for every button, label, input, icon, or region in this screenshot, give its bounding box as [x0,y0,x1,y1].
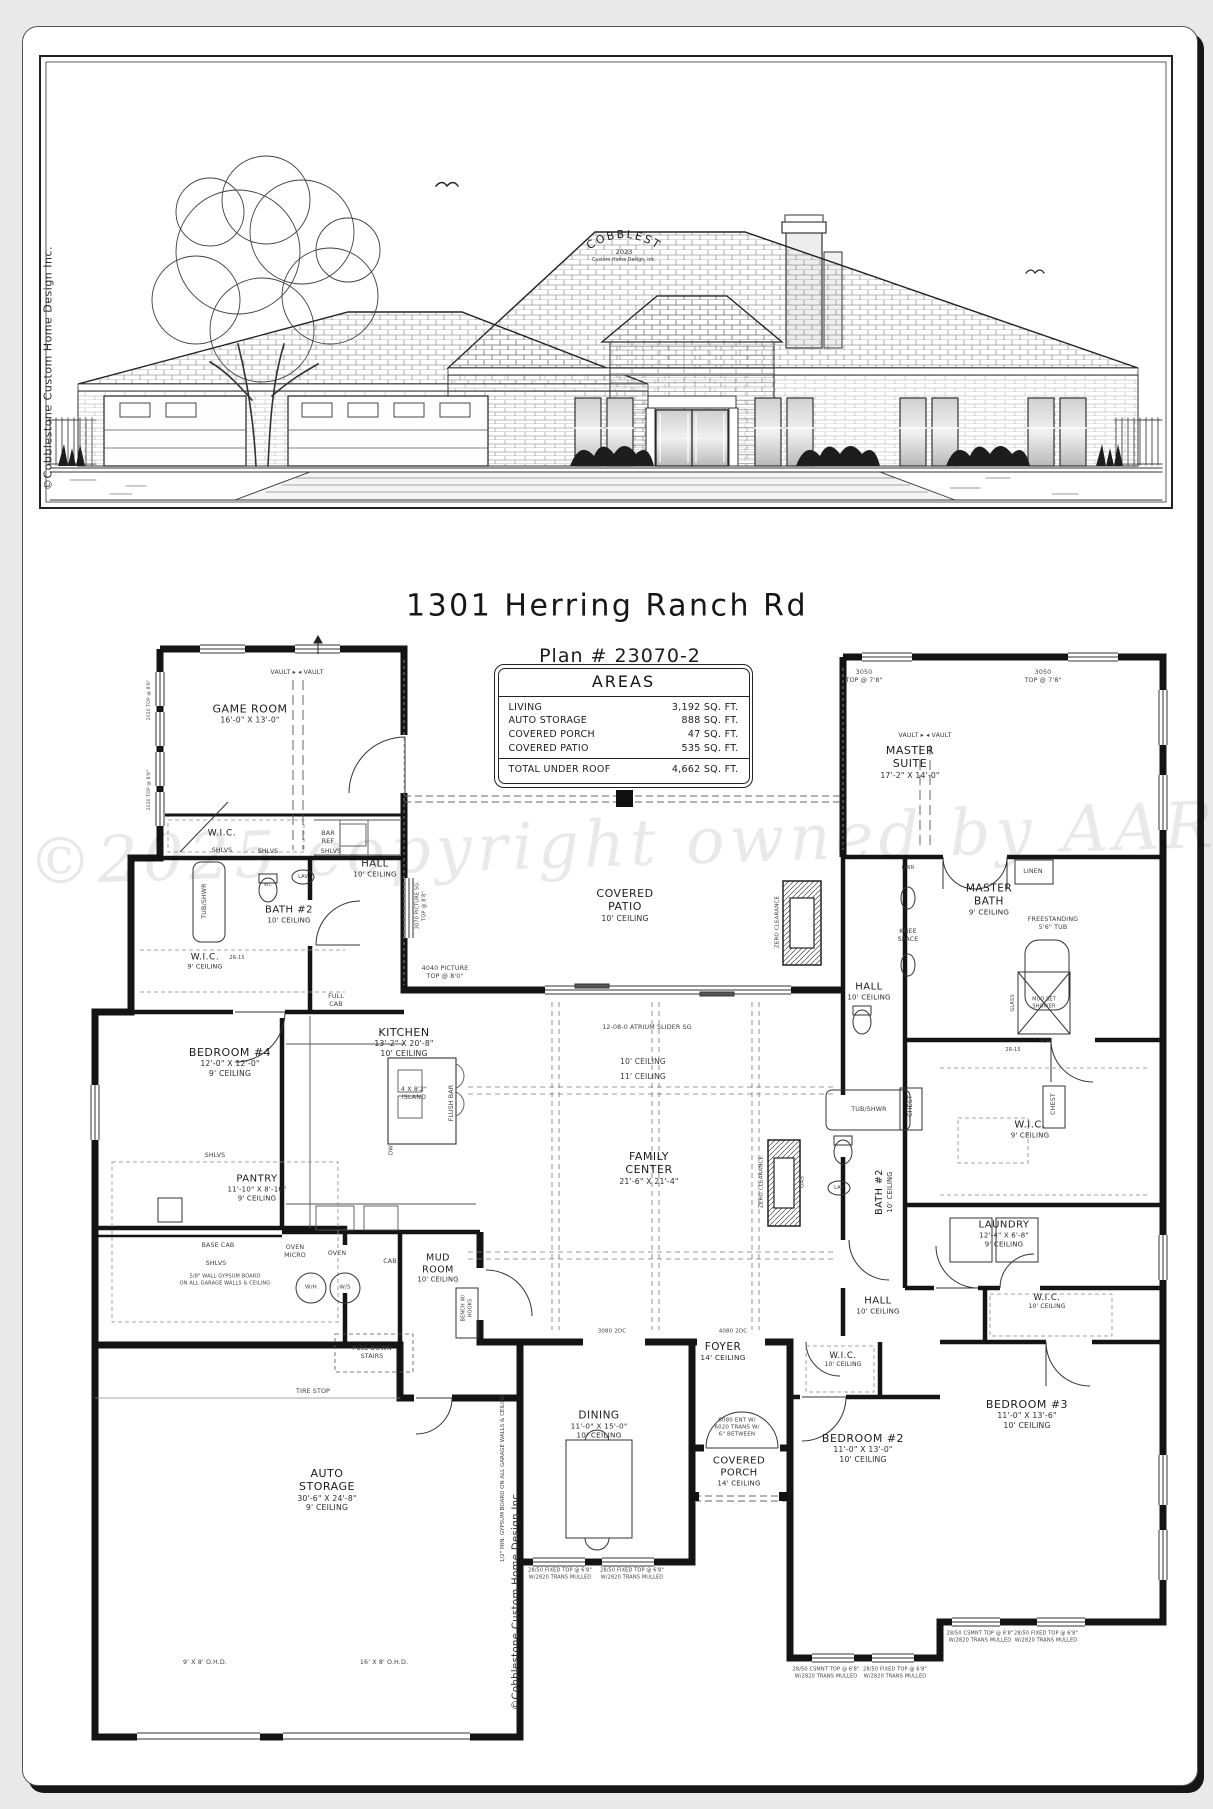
left-margin-credit: ©Cobblestone Custom Home Design Inc. [42,246,55,490]
room-label: KITCHEN 13'-2" X 20'-8"10' CEILING [374,1026,433,1058]
dining-table [566,1430,632,1550]
room-name: GAME ROOM [213,703,288,716]
plan-note: 28/50 FIXED TOP @ 6'8"W/2820 TRANS MULLE… [600,1568,664,1581]
plan-note: TUB/SHWR [201,883,209,918]
room-label: MASTERBATH 9' CEILING [966,883,1012,918]
logo-year: 2023 [616,248,633,256]
room-dimensions: 9' CEILING [966,908,1012,917]
room-label: BEDROOM #3 11'-0" X 13'-6"10' CEILING [986,1398,1068,1430]
sheet-address: 1301 Herring Ranch Rd [406,589,808,624]
room-name: MASTERSUITE [880,744,939,771]
room-name: W.I.C. [824,1351,861,1361]
room-label: BEDROOM #2 11'-0" X 13'-0"10' CEILING [822,1432,904,1464]
plan-note: PULL DOWNSTAIRS [352,1345,392,1361]
plan-note: 28/50 CSMNT TOP @ 6'8"W/2820 TRANS MULLE… [793,1667,860,1680]
plan-note: 4040 PICTURETOP @ 8'0" [422,965,469,981]
room-dimensions: 21'-6" X 21'-4" [619,1177,678,1186]
patio-post [616,790,633,807]
plan-note: 3050TOP @ 7'8" [1024,669,1061,685]
blueprint-sheet: COBBLESTONE 2023 Custom Home Design, Inc… [0,0,1213,1809]
garage-margin-credit: ©Cobblestone Custom Home Design Inc. [511,1490,522,1710]
plan-note: 9' X 8' O.H.D. [183,1659,227,1667]
area-row-label: COVERED PATIO [509,742,589,756]
room-name: AUTOSTORAGE [297,1467,356,1494]
plan-note: DW [388,1145,395,1155]
plan-note: LAV [298,874,308,881]
plan-note: 5/8" WALL GYPSUM BOARDON ALL GARAGE WALL… [180,1274,271,1287]
area-row: LIVING 3,192 SQ. FT. [509,701,739,715]
plan-note: 16' X 8' O.H.D. [360,1659,408,1667]
plan-note: FULLCAB [328,993,344,1009]
room-dimensions: 10' CEILING [847,994,890,1003]
room-name: MASTERBATH [966,883,1012,909]
room-label: MUDROOM 10' CEILING [417,1252,458,1283]
areas-total-label: TOTAL UNDER ROOF [509,763,611,777]
plan-note: 28/50 FIXED TOP @ 6'8"W/2820 TRANS MULLE… [863,1667,927,1680]
plan-note: 2R-15 [229,955,244,962]
room-name: PANTRY [228,1173,287,1185]
room-dimensions: 16'-0" X 13'-0" [213,716,288,725]
room-label: BATH #2 10' CEILING [265,905,313,926]
areas-title: AREAS [509,672,739,694]
room-dimensions: 11'-0" X 13'-6"10' CEILING [986,1411,1068,1430]
plan-note: W/S [339,1284,350,1291]
room-dimensions: 12'-4" X 6'-8"9' CEILING [978,1232,1029,1249]
room-dimensions: 14' CEILING [700,1354,745,1363]
room-dimensions: 9' CEILING [188,964,223,972]
plan-note: LINEN [1023,868,1043,876]
room-dimensions: 10' CEILING [886,1169,894,1215]
room-name: HALL [353,859,396,871]
plan-note: ZERO CLEARANCE [758,1156,765,1208]
room-label: HALL 10' CEILING [353,859,396,880]
plan-note: ZERO CLEARANCE [774,896,781,948]
plan-note: 11' CEILING [620,1072,666,1082]
room-label: GAME ROOM 16'-0" X 13'-0" [213,703,288,726]
room-label: AUTOSTORAGE 30'-6" X 24'-8"9' CEILING [297,1467,356,1513]
plan-note: CAB [383,1258,396,1266]
plan-note: 4 X 8'2"ISLAND [401,1086,427,1102]
plan-note: W/H [305,1284,317,1291]
room-dimensions: 13'-2" X 20'-8"10' CEILING [374,1039,433,1058]
room-label: W.I.C. 10' CEILING [824,1351,861,1369]
area-row: COVERED PORCH 47 SQ. FT. [509,728,739,742]
plan-note: 28/50 FIXED TOP @ 6'8"W/2820 TRANS MULLE… [1014,1631,1078,1644]
plan-note: BARREF [321,830,334,846]
area-row-value: 47 SQ. FT. [688,728,739,742]
room-name: BEDROOM #3 [986,1398,1068,1411]
room-label: W.I.C. [208,829,236,840]
room-dimensions: 14' CEILING [713,1480,765,1489]
plan-note: GLASS [1010,994,1017,1011]
plan-note: SHLVS [205,1152,226,1160]
plan-note: TIRE STOP [296,1388,330,1396]
room-label: LAUNDRY 12'-4" X 6'-8"9' CEILING [978,1219,1029,1248]
room-name: LAUNDRY [978,1219,1029,1231]
plan-note: FREESTANDING5'6" TUB [1028,916,1078,932]
areas-total-row: TOTAL UNDER ROOF 4,662 SQ. FT. [509,763,739,777]
area-row-value: 888 SQ. FT. [682,714,739,728]
areas-table: AREAS LIVING 3,192 SQ. FT. AUTO STORAGE … [494,664,753,788]
room-dimensions: 10' CEILING [856,1308,899,1317]
room-name: BEDROOM #4 [189,1046,271,1059]
room-label: BEDROOM #4 12'-0" X 12'-0"9' CEILING [189,1046,271,1078]
room-name: BATH #2 [265,905,313,917]
room-name: HALL [856,1296,899,1308]
plan-note: BASE CAB [202,1242,235,1250]
plan-note: KNEESPACE [898,928,919,944]
plan-note: MUD SETSHOWER [1032,997,1056,1010]
room-dimensions: 17'-2" X 14'-0" [880,771,939,780]
room-name: W.I.C. [1028,1293,1065,1303]
plan-note: LAV [834,1185,844,1192]
area-row-label: COVERED PORCH [509,728,595,742]
plan-note: FLUSH BAR [448,1085,456,1122]
room-dimensions: 11'-0" X 15'-0"10' CEILING [571,1422,628,1440]
plan-note: BENCH W/HOOKS [461,1295,474,1322]
area-row-label: AUTO STORAGE [509,714,588,728]
room-dimensions: 30'-6" X 24'-8"9' CEILING [297,1494,356,1513]
plan-note: 3070 PICTURE SGTOP @ 8'8" [415,883,428,930]
garage-gypsum-note: 1/2" MIN. GYPSUM BOARD ON ALL GARAGE WAL… [500,1394,506,1562]
room-dimensions: 11'-10" X 8'-10"9' CEILING [228,1186,287,1203]
room-name: BEDROOM #2 [822,1432,904,1445]
plan-note: 3080 2DC [598,1328,627,1335]
room-name: W.I.C. [208,829,236,840]
plan-note: SHLVS [258,848,279,856]
area-row: AUTO STORAGE 888 SQ. FT. [509,714,739,728]
room-dimensions: 10' CEILING [824,1362,861,1369]
room-dimensions: 11'-0" X 13'-0"10' CEILING [822,1445,904,1464]
plan-note: OVEN [328,1250,346,1258]
plan-note: 4080 2DC [719,1328,748,1335]
plan-note: SEAT [1039,1038,1053,1045]
plan-note: 28/50 CSMNT TOP @ 6'8"W/2820 TRANS MULLE… [947,1631,1014,1644]
plan-note: GAS [799,1176,806,1188]
plan-note: DWR [902,865,915,872]
plan-note: 3050TOP @ 7'8" [845,669,882,685]
plan-note: 28/50 FIXED TOP @ 6'8"W/2820 TRANS MULLE… [528,1568,592,1581]
room-label: MASTERSUITE 17'-2" X 14'-0" [880,744,939,780]
room-name: FAMILYCENTER [619,1150,678,1177]
room-dimensions: 10' CEILING [353,871,396,880]
room-label: PANTRY 11'-10" X 8'-10"9' CEILING [228,1173,287,1202]
plan-note: SHLVS [321,848,342,856]
room-dimensions: 10' CEILING [1028,1304,1065,1311]
plan-note: CHEST [907,1095,915,1117]
garage-doors [104,396,488,466]
room-label: HALL 10' CEILING [847,982,890,1003]
plan-note: 12-08-0 ATRIUM SLIDER SG [602,1024,692,1032]
room-name: MUDROOM [417,1252,458,1275]
plan-note: WC [264,883,272,889]
room-name: COVEREDPORCH [713,1456,765,1480]
plan-note: SHLVS [206,1260,227,1268]
room-label: W.I.C. 9' CEILING [188,953,223,972]
room-name: W.I.C. [188,953,223,964]
logo-subtext: Custom Home Design, Inc. [592,257,656,263]
room-dimensions: 12'-0" X 12'-0"9' CEILING [189,1059,271,1078]
plan-note: OVENMICRO [284,1244,306,1260]
room-dimensions: 10' CEILING [596,914,653,923]
room-dimensions: 10' CEILING [265,917,313,926]
room-label: DINING 11'-0" X 15'-0"10' CEILING [571,1410,628,1441]
areas-rows: LIVING 3,192 SQ. FT. AUTO STORAGE 888 SQ… [509,701,739,756]
area-row-value: 535 SQ. FT. [682,742,739,756]
room-label: COVEREDPATIO 10' CEILING [596,887,653,923]
room-name: COVEREDPATIO [596,887,653,914]
room-name: W.I.C. [1011,1120,1050,1132]
plan-note: TUB/SHWR [851,1106,886,1114]
room-label: COVEREDPORCH 14' CEILING [713,1456,765,1489]
room-label: HALL 10' CEILING [856,1296,899,1317]
plan-note: SHLVS [212,847,233,855]
plan-note: 2R-15 [1005,1047,1020,1054]
room-name: FOYER [700,1341,745,1354]
room-name: KITCHEN [374,1026,433,1039]
area-row-label: LIVING [509,701,543,715]
room-label: BATH #2 10' CEILING [874,1169,894,1215]
room-label: W.I.C. 9' CEILING [1011,1120,1050,1141]
room-label: FOYER 14' CEILING [700,1341,745,1363]
room-name: HALL [847,982,890,994]
fixtures [158,860,1070,1338]
plan-note: VAULT ▸ ◂ VAULT [270,669,323,677]
room-dimensions: 10' CEILING [417,1276,458,1284]
plan-note: 2020 TOP @ 8'6" [147,680,153,721]
plan-note: 10' CEILING [620,1057,666,1067]
area-row: COVERED PATIO 535 SQ. FT. [509,742,739,756]
plan-note: CHEST [1050,1093,1058,1115]
areas-total-value: 4,662 SQ. FT. [672,763,739,777]
room-name: DINING [571,1410,628,1423]
room-dimensions: 9' CEILING [1011,1132,1050,1141]
plan-note: VAULT ▸ ◂ VAULT [898,732,951,740]
room-name: BATH #2 [874,1169,886,1215]
room-label: FAMILYCENTER 21'-6" X 21'-4" [619,1150,678,1186]
front-door [656,410,728,466]
area-row-value: 3,192 SQ. FT. [672,701,739,715]
plan-note: 2020 TOP @ 8'6" [147,770,153,811]
room-label: W.I.C. 10' CEILING [1028,1293,1065,1311]
plan-note: 6080 ENT W/6020 TRANS W/6" BETWEEN [714,1417,759,1438]
